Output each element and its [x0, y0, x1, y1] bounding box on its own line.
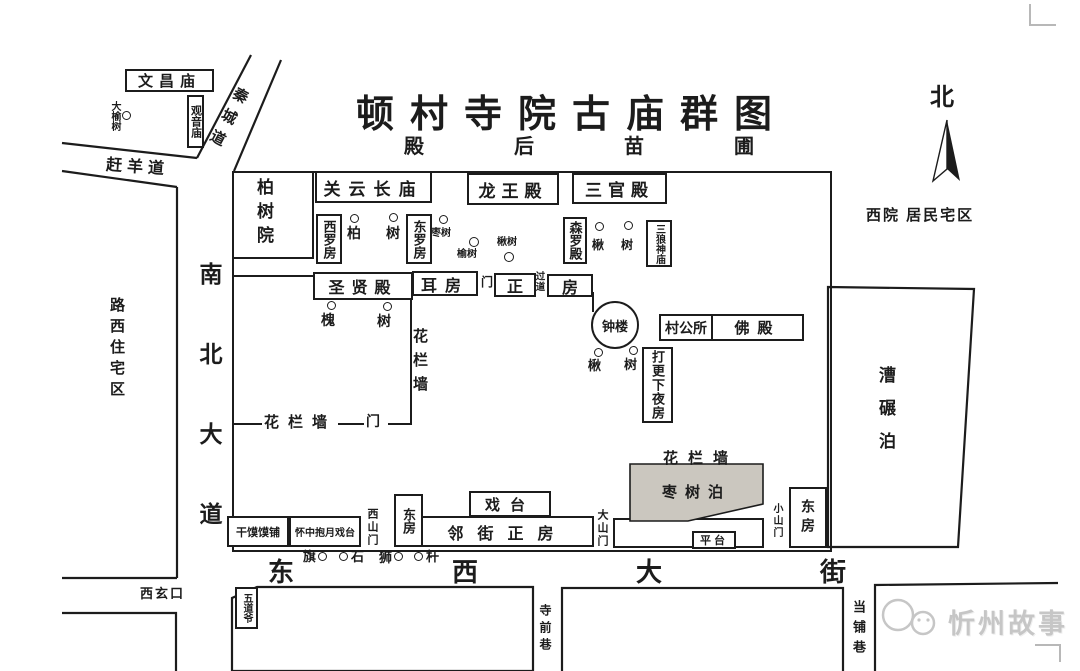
building-dongluofang: 东罗房: [406, 214, 432, 264]
area-label-nursery: 殿后苗圃: [404, 136, 844, 158]
tree-label: 楸树: [497, 237, 517, 248]
tree-label: 楸: [592, 239, 604, 252]
tree-label: 楸: [588, 359, 601, 373]
tree-icon: [469, 237, 479, 247]
ganyang-road-line: [62, 143, 197, 158]
wall-segment: [232, 257, 314, 259]
road-label-xixuankou: 西玄口: [140, 587, 185, 601]
qincheng-road-line: [234, 60, 281, 171]
tree-label: 枣树: [431, 228, 451, 239]
gate-label-dashanmen: 大山门: [596, 509, 607, 548]
compass-needle-icon: [933, 120, 960, 181]
pole-base-icon: [414, 552, 423, 561]
south-block-middle: [562, 588, 843, 671]
temple-map: 顿村寺院古庙群图 殿后苗圃 北 西院 居民宅区 路西住宅区 漕碾泊 秦城道 赶羊…: [0, 0, 1080, 671]
road-label-siqianxiang: 寺前巷: [539, 604, 551, 655]
wall-label-hualanqiang-south: 花栏墙: [663, 451, 738, 468]
tree-icon: [122, 111, 131, 120]
building-dageng-xiayefang: 打更下夜房: [642, 347, 673, 423]
stone-icon: [339, 552, 348, 561]
street-object-label: 杆: [426, 550, 439, 564]
tree-label: 树: [377, 314, 391, 329]
building-linjie-zhengfang: 邻街正房: [421, 516, 594, 547]
street-object-label: 石: [351, 550, 364, 564]
building-huaizhong-baoyue-xitai: 怀中抱月戏台: [289, 516, 361, 547]
lion-icon: [394, 552, 403, 561]
district-label-road-west: 路西住宅区: [109, 297, 124, 402]
building-dongfang-west: 东房: [394, 494, 423, 547]
gate-label-xiaoshanmen: 小山门: [771, 503, 781, 539]
wall-label-hualanqiang-west: 花栏墙: [412, 328, 427, 400]
building-guanyunchangmiao: 关云长庙: [315, 171, 432, 203]
street-object-label: 旗: [303, 550, 316, 564]
south-block-west: [232, 587, 533, 671]
tree-icon: [594, 348, 603, 357]
tree-label: 柏: [347, 226, 361, 241]
passage-label-guodao: 过道: [534, 271, 544, 292]
flower-wall-horizontal: [388, 423, 412, 425]
road-label-nanbei-dadao: 南北大道: [197, 262, 220, 582]
tree-label: 树: [621, 239, 633, 252]
tree-icon: [383, 302, 392, 311]
building-sanlangshenmiao: 三狼神庙: [646, 220, 672, 267]
building-baishuyuan: 柏树院: [255, 178, 272, 250]
building-sanguandian: 三官殿: [572, 173, 667, 204]
building-dongfang-east: 东房: [789, 487, 827, 548]
building-erfang: 耳房: [412, 271, 478, 296]
building-zhonglou: 钟楼: [591, 301, 639, 349]
gate-label-xishanmen: 西山门: [366, 508, 377, 547]
watermark-logo-icon: [883, 600, 934, 634]
tree-icon: [389, 213, 398, 222]
flagpole-base-icon: [318, 552, 327, 561]
watermark-text: 忻州故事: [948, 602, 1068, 641]
building-xitai: 戏台: [469, 491, 551, 517]
area-label-zaoshubo: 枣树泊: [662, 485, 731, 502]
gate-label-hualan-men: 门: [366, 414, 380, 429]
district-label-west-residential: 西院 居民宅区: [866, 208, 974, 225]
building-shengxiandian: 圣贤殿: [313, 272, 413, 300]
building-fodian: 佛殿: [711, 314, 804, 341]
wall-segment: [232, 275, 313, 277]
tree-icon: [439, 215, 448, 224]
building-zhengfang-left: 正: [494, 273, 536, 297]
tree-label: 榆树: [457, 249, 477, 260]
gate-label-men: 门: [481, 276, 493, 289]
street-object-label: 狮: [379, 551, 392, 565]
tree-icon: [595, 222, 604, 231]
wall-segment: [312, 171, 314, 259]
road-label-dangpuxiang: 当铺巷: [852, 600, 865, 660]
page-title: 顿村寺院古庙群图: [356, 83, 788, 138]
building-wudaoye: 五道爷: [235, 587, 258, 629]
building-zhengfang-right: 房: [547, 274, 593, 297]
building-xiluofang: 西罗房: [316, 214, 342, 264]
caonianbo-enclosure: [828, 287, 974, 547]
building-cungongsuo: 村公所: [659, 314, 713, 341]
building-guanyinmiao: 观音庙: [187, 95, 204, 148]
corner-bracket-icon: [1035, 645, 1060, 662]
tree-label: 树: [624, 358, 637, 372]
tree-label: 大榆树: [109, 101, 119, 131]
tree-icon: [629, 346, 638, 355]
tree-icon: [350, 214, 359, 223]
tree-label: 槐: [321, 313, 335, 328]
tree-icon: [327, 301, 336, 310]
building-pingtai: 平台: [692, 531, 736, 549]
tree-icon: [504, 252, 514, 262]
corner-bracket-icon: [1030, 4, 1056, 25]
building-ganmomopu: 干馍馍铺: [227, 516, 289, 547]
building-longwangdian: 龙王殿: [467, 173, 559, 205]
building-senluodian: 森罗殿: [563, 217, 587, 264]
southwest-block-line: [62, 613, 176, 671]
tree-label: 树: [386, 226, 400, 241]
wall-label-hualanqiang-mid: 花栏墙: [262, 415, 338, 432]
tree-icon: [624, 221, 633, 230]
compass-north-label: 北: [930, 85, 954, 111]
building-wenchangmiao: 文昌庙: [125, 69, 214, 92]
district-label-caonianbo: 漕碾泊: [877, 366, 894, 465]
